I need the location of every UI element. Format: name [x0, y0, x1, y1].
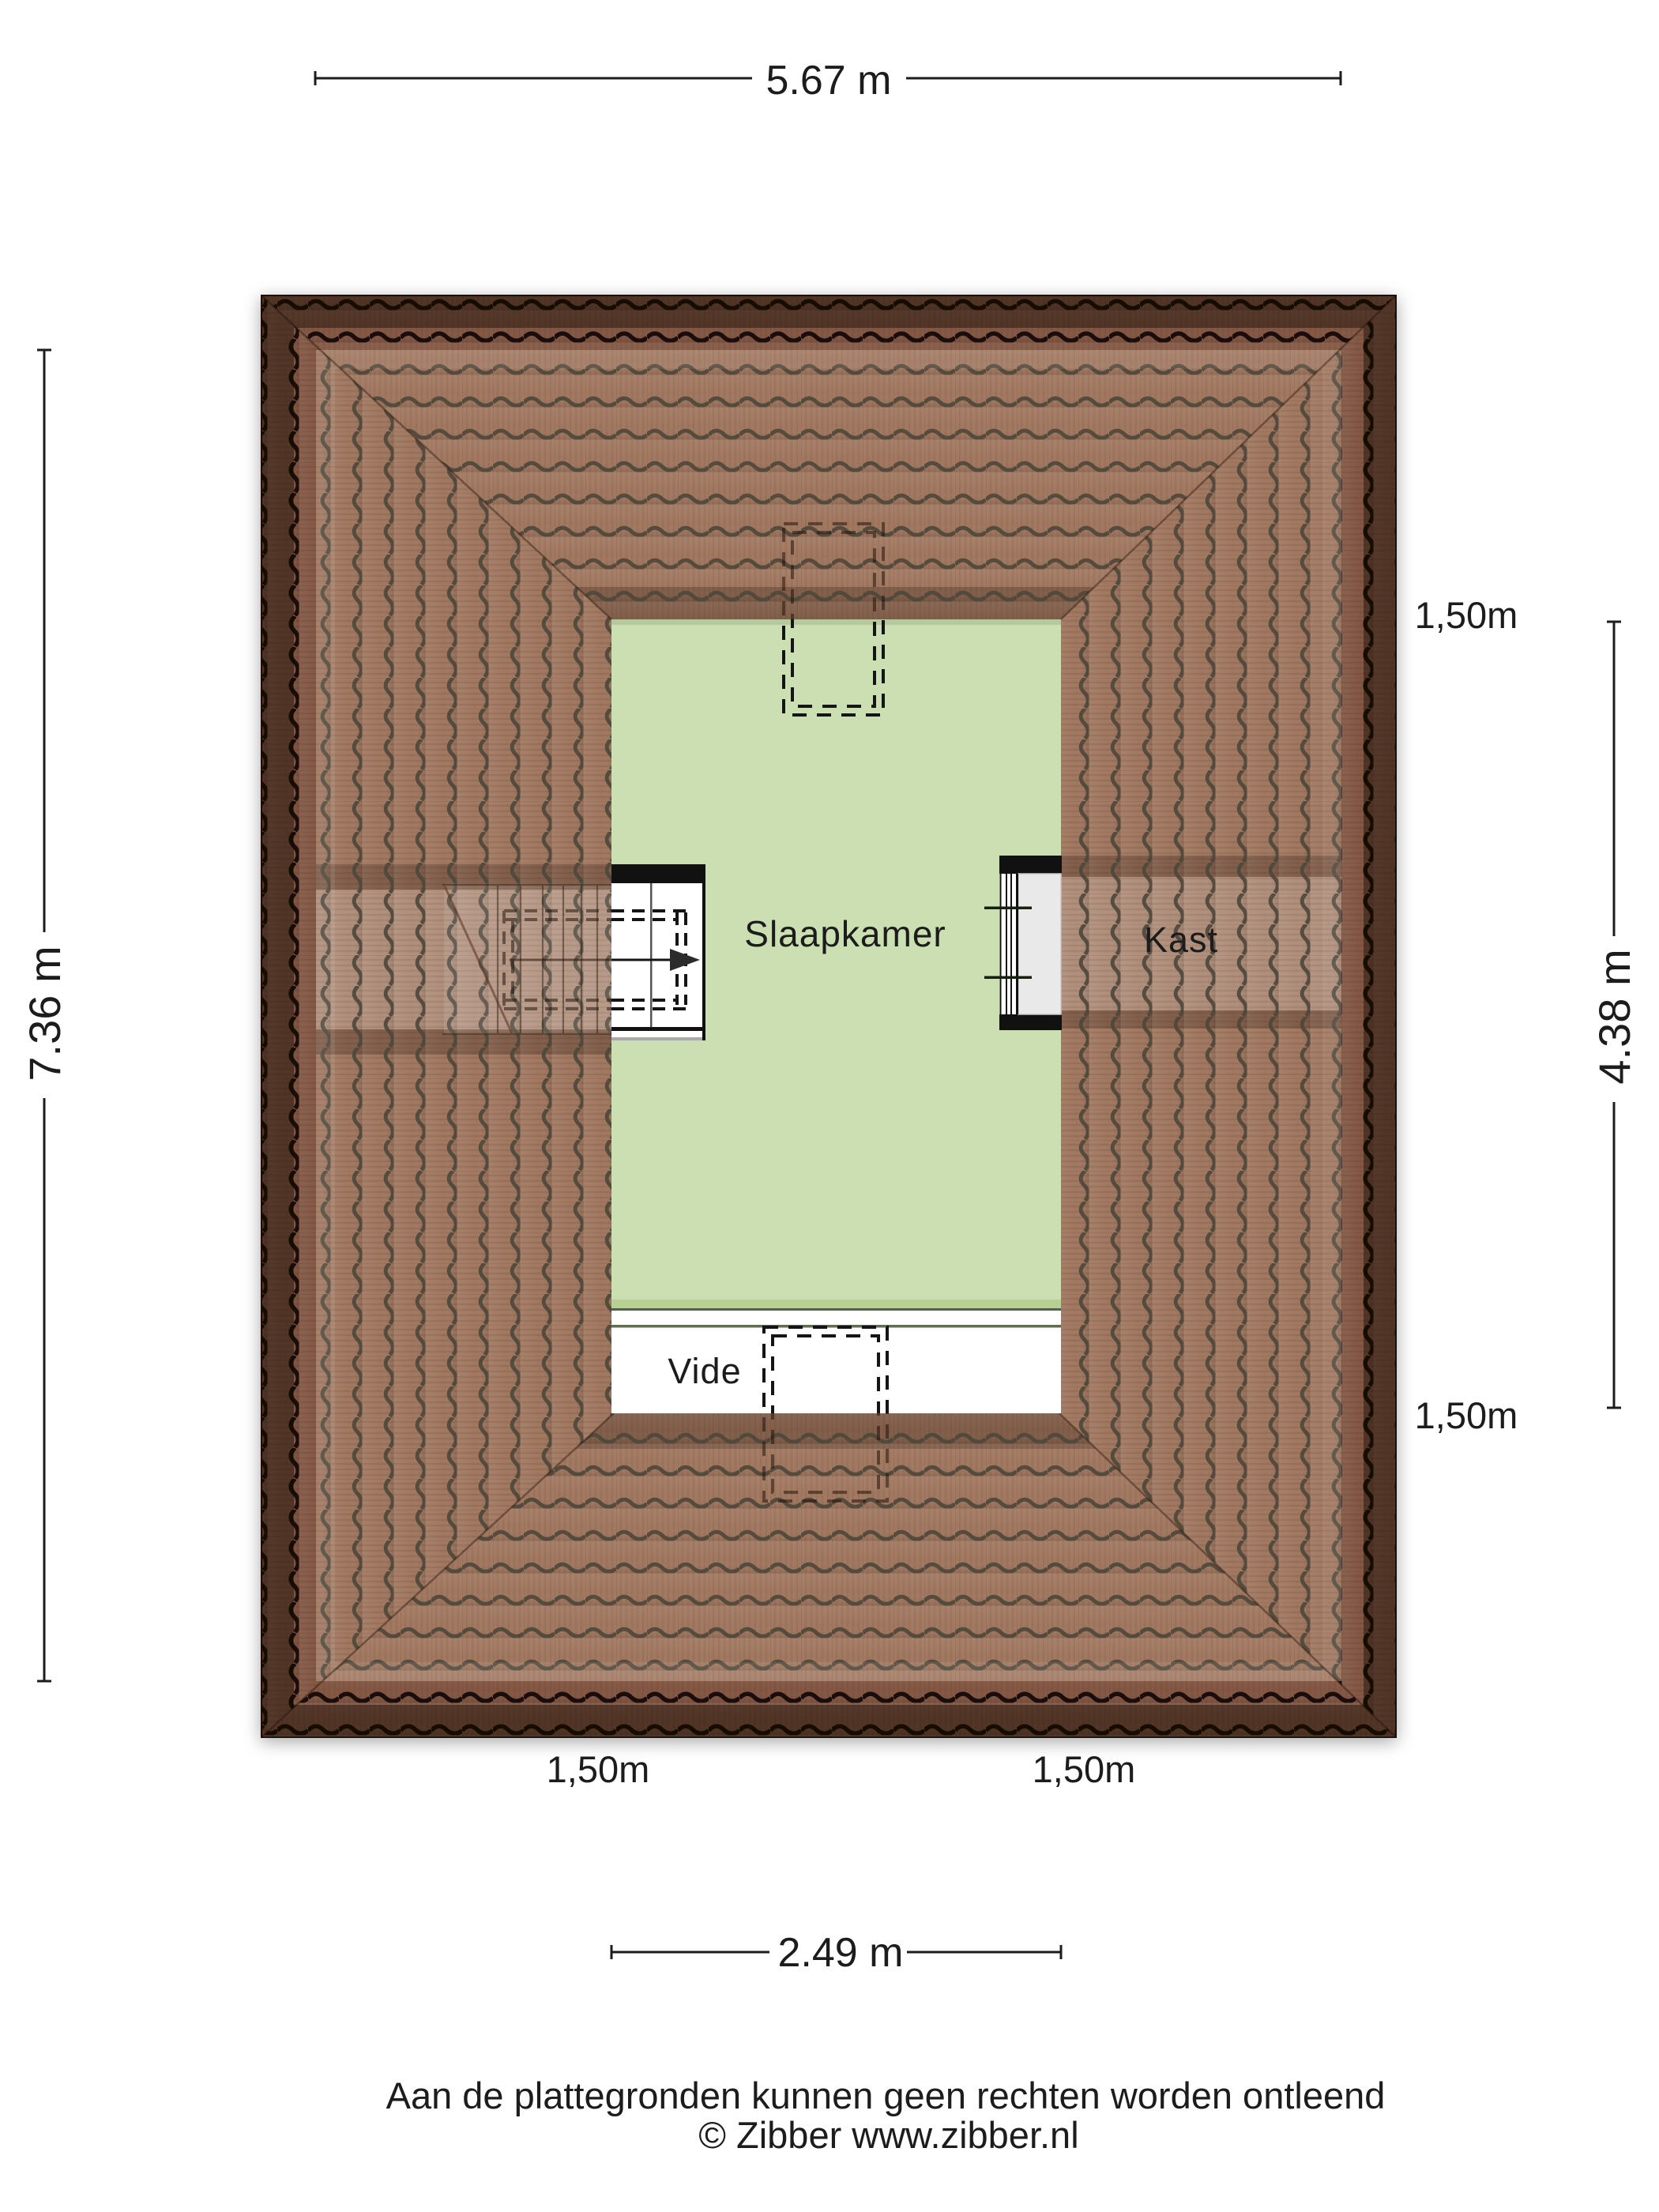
- svg-text:Aan de plattegronden kunnen ge: Aan de plattegronden kunnen geen rechten…: [386, 2075, 1386, 2116]
- svg-text:4.38 m: 4.38 m: [1589, 949, 1639, 1084]
- svg-text:© Zibber www.zibber.nl: © Zibber www.zibber.nl: [698, 2114, 1078, 2156]
- svg-text:Vide: Vide: [668, 1351, 741, 1391]
- svg-text:1,50m: 1,50m: [1415, 1394, 1518, 1436]
- svg-text:7.36 m: 7.36 m: [20, 946, 70, 1081]
- svg-text:1,50m: 1,50m: [1415, 594, 1518, 636]
- svg-text:Kast: Kast: [1144, 920, 1218, 960]
- svg-text:Slaapkamer: Slaapkamer: [744, 913, 946, 954]
- svg-text:2.49 m: 2.49 m: [778, 1930, 904, 1976]
- svg-text:5.67 m: 5.67 m: [766, 58, 892, 103]
- svg-text:1,50m: 1,50m: [547, 1748, 650, 1790]
- svg-text:1,50m: 1,50m: [1033, 1748, 1136, 1790]
